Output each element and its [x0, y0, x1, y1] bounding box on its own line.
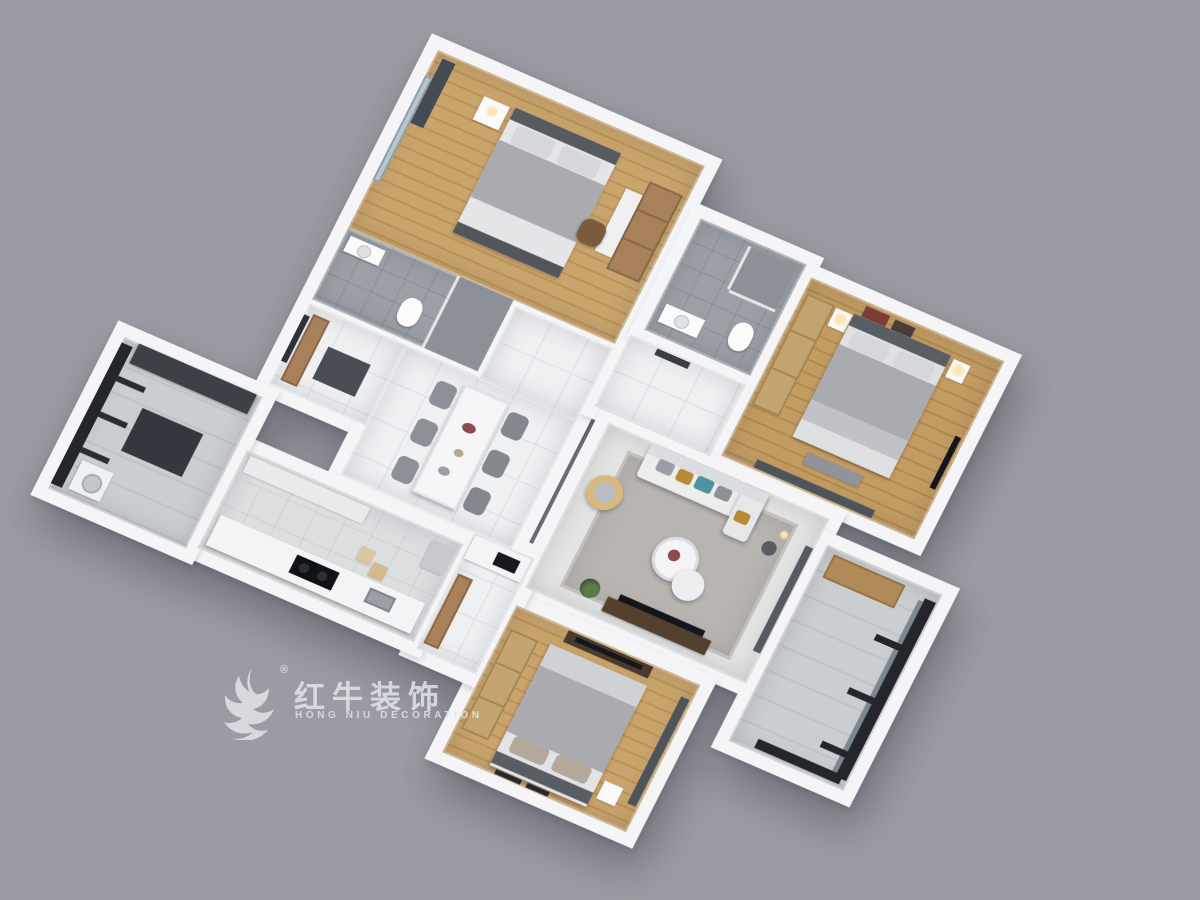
burner [315, 570, 329, 583]
stool [368, 562, 389, 581]
toilet [393, 295, 427, 331]
shelf-line [623, 237, 653, 252]
render-stage: ® 红牛装饰 HONG NIU DECORATION [0, 0, 1200, 900]
shelf-line [637, 209, 667, 224]
bull-swoosh-icon [222, 666, 280, 740]
window-mullion [847, 687, 876, 704]
burner [297, 562, 311, 575]
window-mullion [820, 741, 849, 758]
window-mullion [98, 411, 128, 428]
bed [453, 108, 622, 279]
fridge [419, 540, 455, 576]
table-decor [436, 465, 451, 478]
watermark: ® 红牛装饰 HONG NIU DECORATION [222, 652, 482, 752]
washer [68, 460, 114, 502]
floor-mat [312, 347, 371, 397]
wardrobe-door-line [791, 330, 816, 342]
floorplan-render [3, 0, 1091, 900]
floor-mat [121, 408, 203, 477]
window-mullion [116, 376, 146, 393]
dining-table [411, 384, 509, 510]
wardrobe-door-line [772, 367, 797, 379]
toilet [724, 319, 758, 355]
washer-door [78, 471, 105, 497]
wardrobe-door-line [496, 662, 521, 674]
shower-floor [730, 247, 798, 310]
nightstand [596, 781, 623, 807]
table-decor [452, 448, 465, 459]
brand-name-en: HONG NIU DECORATION [295, 710, 483, 721]
registered-mark: ® [280, 664, 288, 676]
wardrobe-door-line [479, 696, 504, 708]
table-decor [460, 421, 477, 436]
window-mullion [874, 634, 903, 651]
